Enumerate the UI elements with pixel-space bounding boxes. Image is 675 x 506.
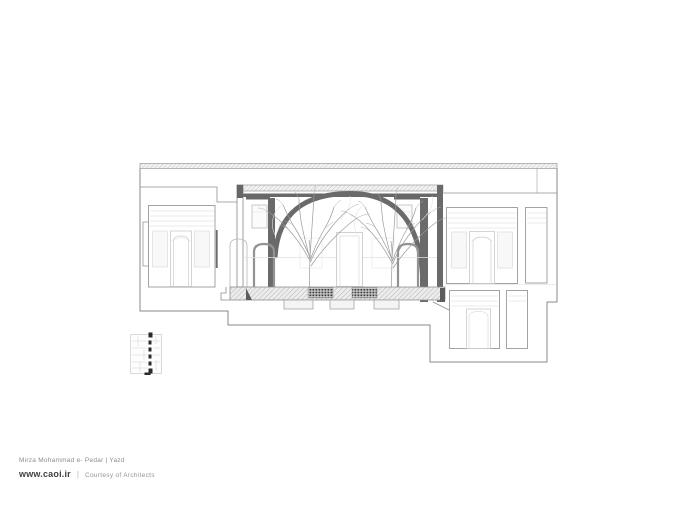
foundation-tab (284, 300, 313, 309)
left-room (143, 206, 218, 288)
right-column-lower (507, 291, 528, 349)
right-column-upper (526, 208, 548, 284)
right-lintel (394, 197, 420, 200)
left-wing-roofline (140, 187, 237, 202)
key-plan (131, 333, 162, 376)
foundation-tab (330, 300, 354, 309)
left-cut-wall (237, 185, 243, 287)
foundation-tab (374, 300, 399, 309)
floor-grille-left (308, 288, 333, 299)
footer-credit-text: Courtesy of Architects (85, 473, 155, 480)
ground-diagonal (433, 302, 449, 310)
floor-cut-right (440, 288, 445, 302)
right-cut-wall (437, 185, 443, 302)
courtyard-floor (221, 287, 449, 310)
roof-lines (140, 164, 557, 203)
left-room-panel-left (153, 231, 168, 267)
lower-right-niche-frame (467, 309, 491, 349)
roof-hatch-strip (140, 164, 557, 169)
right-room-panel-right (498, 232, 513, 268)
back-wall-door (337, 233, 363, 287)
footer-separator: | (77, 471, 79, 479)
footer-project-title: Mirza Mohammad e- Pedar | Yazd (19, 458, 155, 465)
left-wall-edge-cut (216, 230, 218, 268)
courtyard-windows (252, 205, 412, 228)
left-room-pilaster (143, 222, 149, 266)
footer-website-text: www.caoi.ir (19, 470, 71, 479)
key-plan-outline (131, 335, 162, 374)
footer-credit-line: www.caoi.ir | Courtesy of Architects (19, 470, 155, 480)
courtyard-section (221, 185, 449, 310)
left-lintel (246, 197, 270, 200)
right-room-panel-left (452, 232, 467, 268)
drawing-sheet: Mirza Mohammad e- Pedar | Yazd www.caoi.… (0, 0, 675, 506)
floor-steps-left (221, 287, 230, 300)
section-drawing (0, 0, 675, 506)
footer: Mirza Mohammad e- Pedar | Yazd www.caoi.… (19, 458, 155, 479)
right-iwan-arch (398, 244, 418, 287)
right-rooms (445, 208, 557, 349)
parapet-hatch (237, 185, 443, 191)
left-room-panel-right (195, 231, 210, 267)
floor-grille-right (352, 288, 377, 299)
